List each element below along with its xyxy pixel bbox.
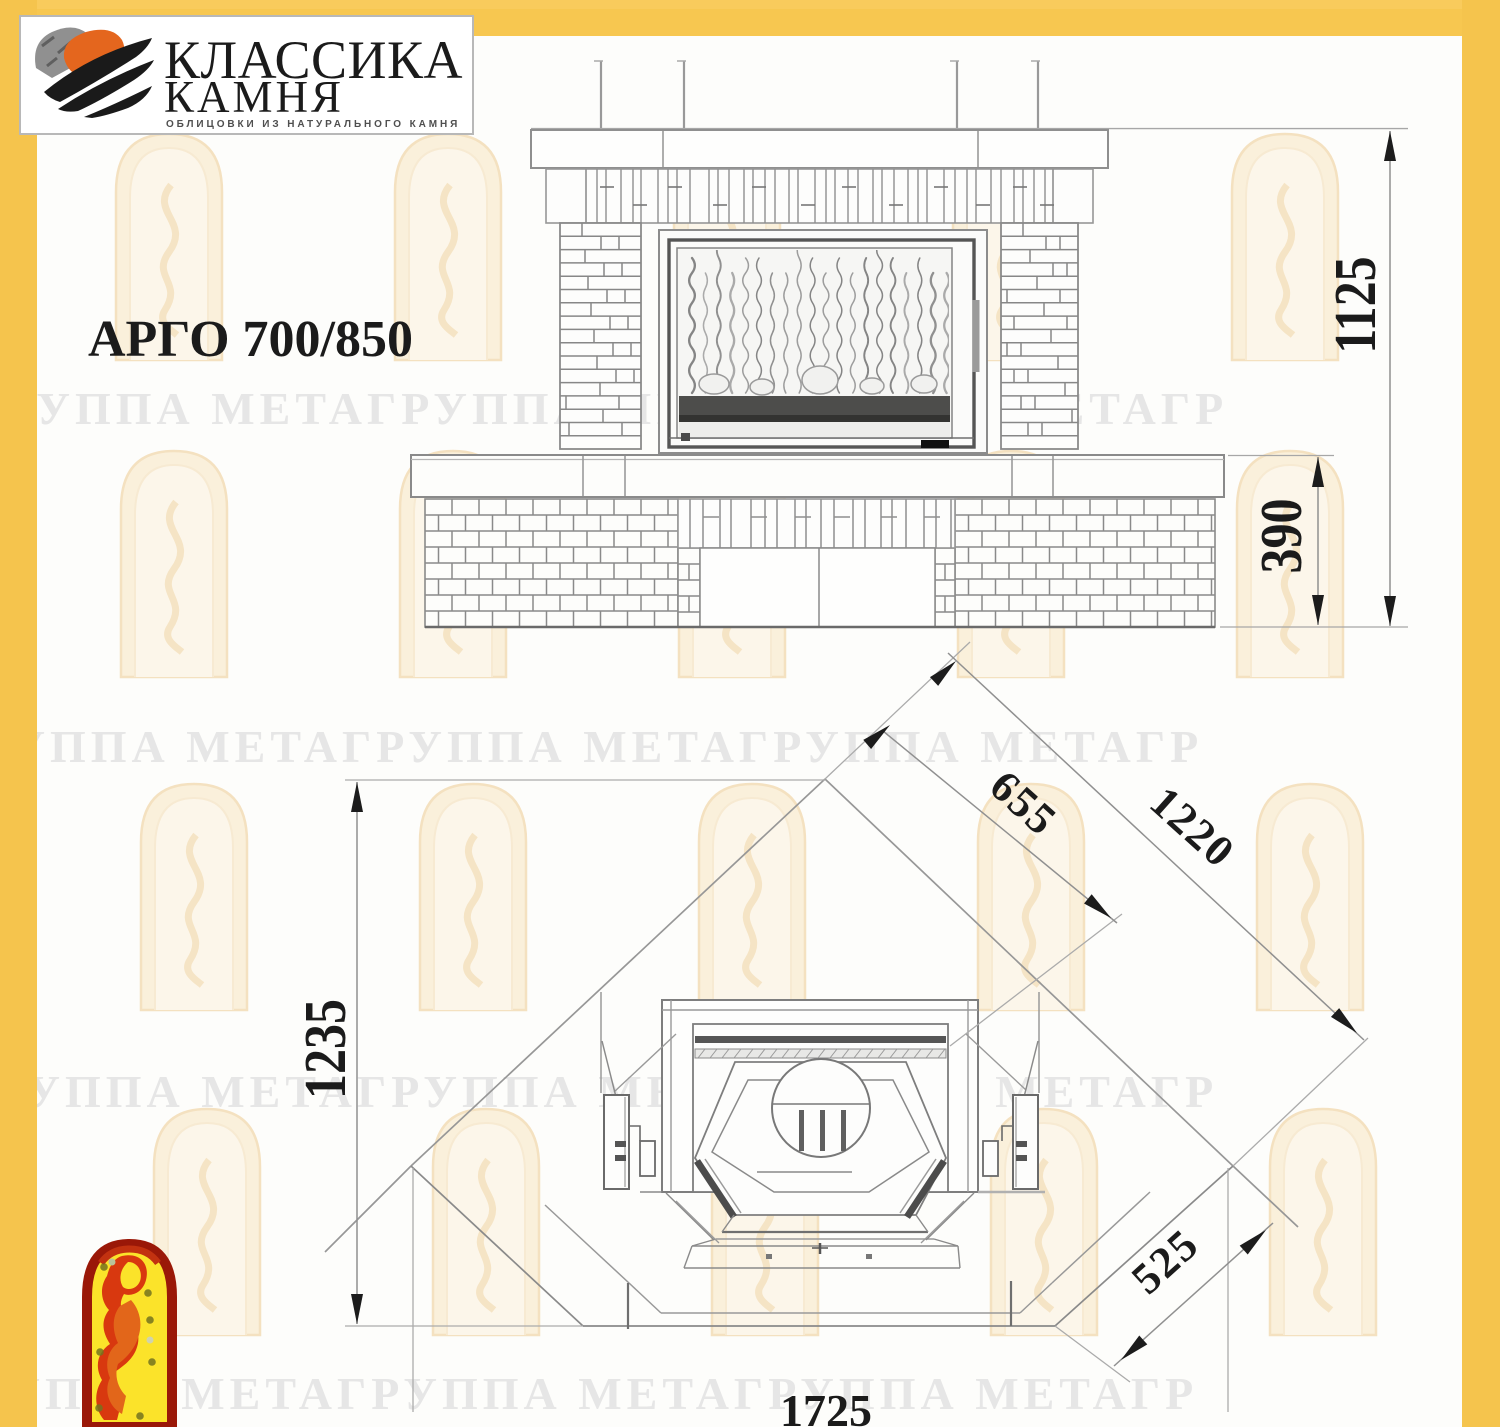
svg-text:1235: 1235: [292, 999, 358, 1099]
svg-text:ГРУППА МЕТАГРУППА МЕТАГРУППА М: ГРУППА МЕТАГРУППА МЕТАГРУППА МЕТАГР: [0, 721, 1203, 772]
svg-text:390: 390: [1248, 499, 1314, 574]
svg-text:ОБЛИЦОВКИ ИЗ НАТУРАЛЬНОГО КАМН: ОБЛИЦОВКИ ИЗ НАТУРАЛЬНОГО КАМНЯ: [166, 119, 460, 130]
svg-text:КАМНЯ: КАМНЯ: [164, 72, 344, 122]
svg-text:АРГО 700/850: АРГО 700/850: [88, 311, 413, 368]
svg-text:1725: 1725: [780, 1385, 872, 1427]
svg-text:1125: 1125: [1322, 256, 1388, 353]
svg-text:ГРУППА МЕТАГРУППА МЕТАГРУППА М: ГРУППА МЕТАГРУППА МЕТАГРУППА МЕТАГР: [0, 1368, 1198, 1419]
